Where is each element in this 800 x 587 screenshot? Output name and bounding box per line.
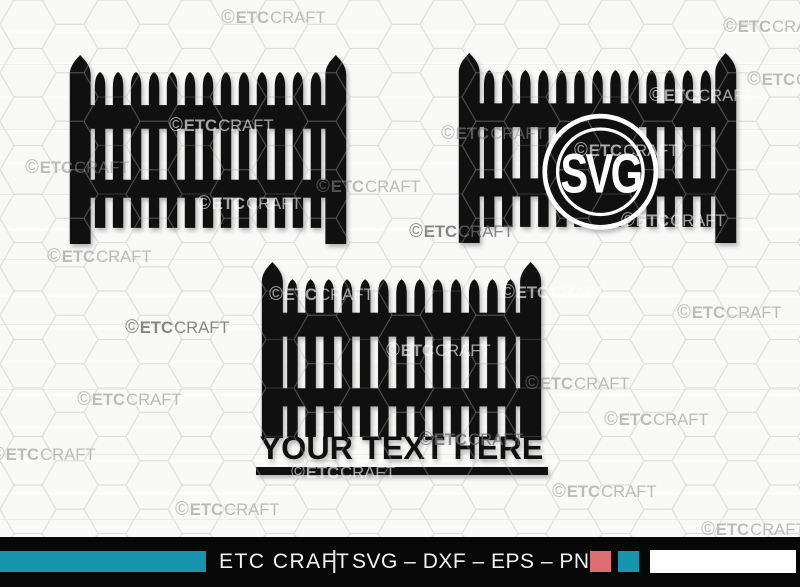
footer-swatch-teal <box>618 551 639 572</box>
watermark: ©ETCCRAFT <box>0 445 96 464</box>
watermark: ©ETCCRAFT <box>47 247 152 266</box>
watermark: ©ETCCRAFT <box>552 482 657 501</box>
svg-text:SVG: SVG <box>560 142 640 204</box>
footer-formats: SVG – DXF – EPS – PNG <box>352 550 606 574</box>
watermark: ©ETCCRAFT <box>723 17 800 36</box>
watermark: ©ETCCRAFT <box>747 70 800 89</box>
picket-fence-plain <box>66 55 350 244</box>
picket-fence-monogram: SVG <box>455 53 740 243</box>
split-fence-text: YOUR TEXT HERE <box>257 432 547 464</box>
watermark: ©ETCCRAFT <box>604 410 709 429</box>
watermark: ©ETCCRAFT <box>77 390 182 409</box>
footer-swatch-white <box>650 550 796 573</box>
picket-fence-split <box>258 262 545 438</box>
footer-divider: | <box>331 546 338 575</box>
split-fence-underline <box>256 467 548 475</box>
artboard: SVG YOUR TEXT HERE ©ETCCRAFT©ETCCRAFT©ET… <box>0 0 800 587</box>
footer-bar: ETC CRAFT | SVG – DXF – EPS – PNG <box>0 537 800 587</box>
split-fence-group: YOUR TEXT HERE <box>258 262 545 475</box>
monogram-text: SVG <box>560 142 640 204</box>
footer-swatch-red <box>590 551 611 572</box>
watermark: ©ETCCRAFT <box>677 303 782 322</box>
watermark: ©ETCCRAFT <box>125 318 230 337</box>
footer-accent-bar <box>0 551 206 572</box>
watermark: ©ETCCRAFT <box>175 500 280 519</box>
watermark: ©ETCCRAFT <box>221 8 326 27</box>
